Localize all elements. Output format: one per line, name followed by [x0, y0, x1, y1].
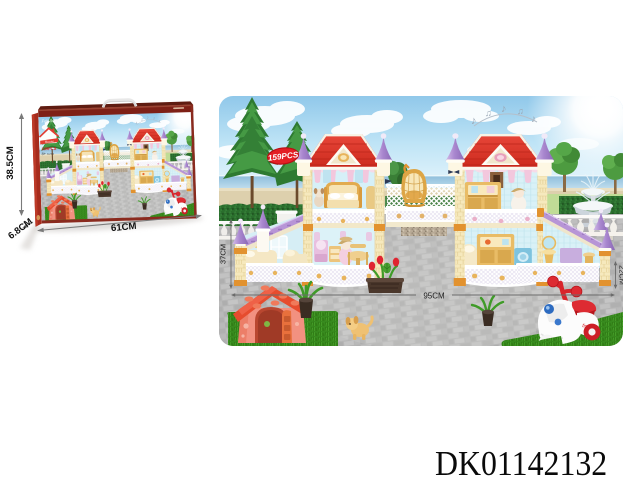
svg-text:61CM: 61CM: [111, 221, 138, 234]
svg-text:Fabilla: Fabilla: [40, 118, 54, 123]
svg-text:38.5CM: 38.5CM: [5, 146, 16, 180]
svg-text:109PCS: 109PCS: [41, 146, 56, 152]
svg-text:8+ ▭▭: 8+ ▭▭: [42, 152, 55, 156]
